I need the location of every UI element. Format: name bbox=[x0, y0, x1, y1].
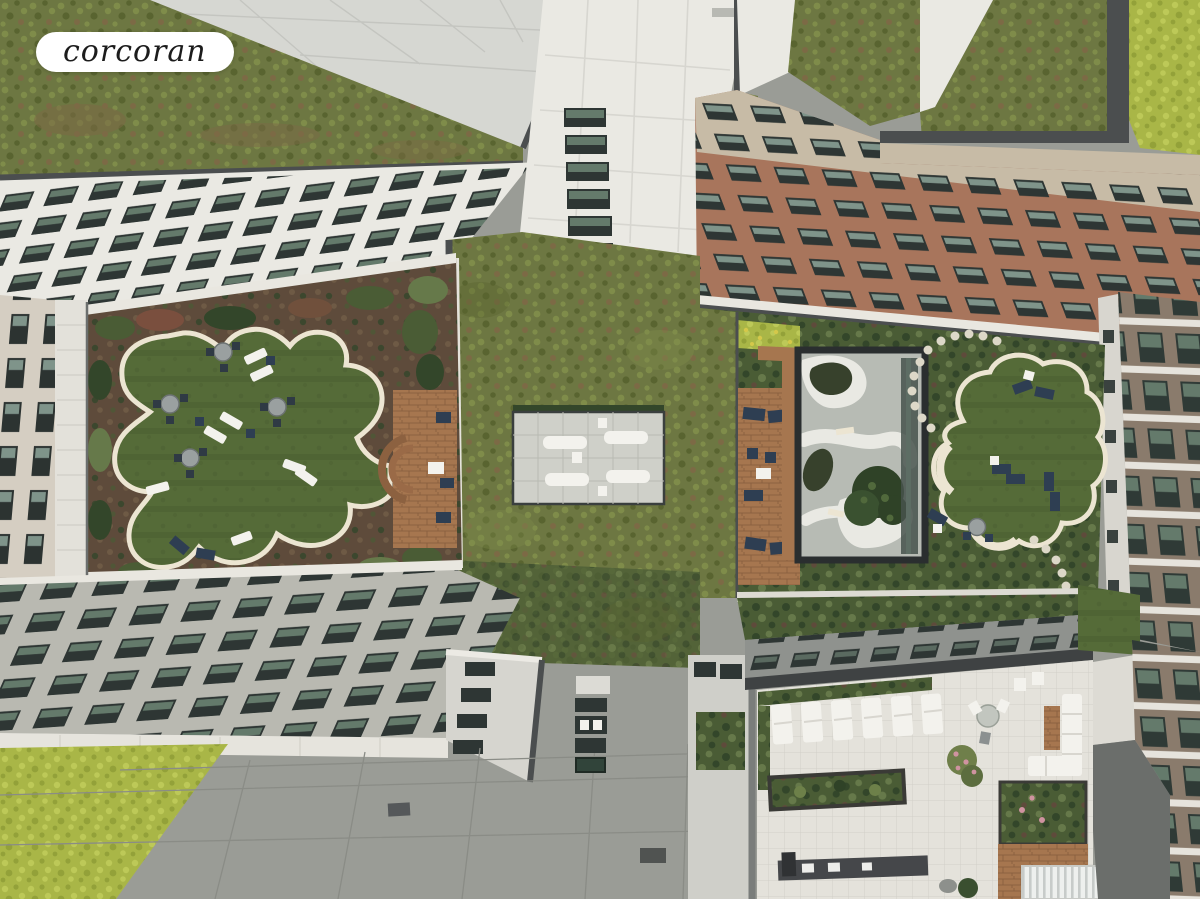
roof-vent bbox=[388, 802, 411, 816]
corcoran-logo-text: corcoran bbox=[63, 37, 207, 67]
west-courtyard bbox=[85, 253, 462, 587]
sun-deck bbox=[513, 405, 664, 504]
south-center-wall bbox=[688, 655, 752, 899]
terrace-planting-bed bbox=[1000, 782, 1086, 844]
terrace-planter bbox=[767, 768, 907, 811]
terrace-sculpture bbox=[939, 879, 957, 893]
zen-garden-skylight bbox=[782, 350, 925, 560]
west-deck bbox=[382, 390, 457, 548]
terrace-tree bbox=[958, 878, 978, 898]
roof-vent bbox=[640, 848, 666, 863]
aerial-photo-canvas bbox=[0, 0, 1200, 899]
rooftop-terrace bbox=[757, 660, 1128, 899]
left-building bbox=[0, 295, 88, 592]
skylight-window-strip bbox=[575, 676, 610, 773]
east-courtyard bbox=[700, 308, 1105, 605]
aerial-photo: corcoran bbox=[0, 0, 1200, 899]
corcoran-logo-badge: corcoran bbox=[36, 32, 234, 72]
